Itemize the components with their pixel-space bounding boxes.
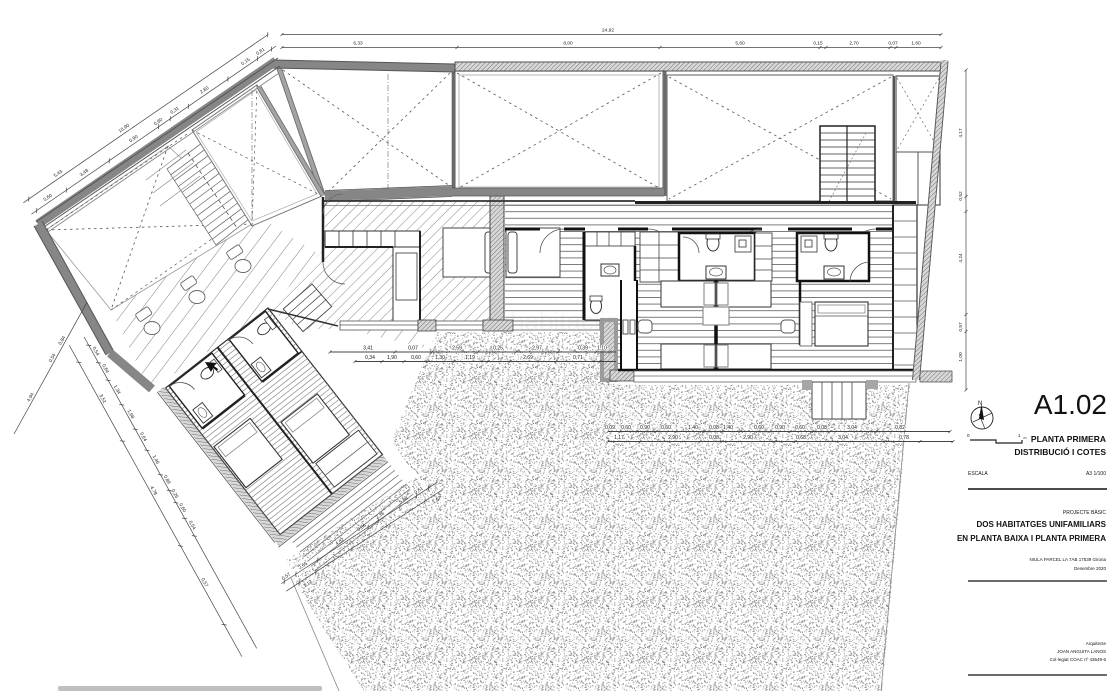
svg-text:3,41: 3,41 [363, 345, 373, 351]
svg-text:0,60: 0,60 [621, 425, 631, 431]
svg-text:0,68: 0,68 [796, 435, 806, 441]
svg-text:Desembre 2020: Desembre 2020 [1074, 566, 1107, 571]
svg-text:1,17: 1,17 [614, 435, 624, 441]
svg-text:0,39: 0,39 [578, 345, 588, 351]
svg-text:0,57: 0,57 [958, 322, 964, 332]
svg-text:0,08: 0,08 [709, 435, 719, 441]
svg-text:Col·legiat COAC nº 43649-6: Col·legiat COAC nº 43649-6 [1050, 657, 1107, 662]
svg-text:0,52: 0,52 [958, 191, 964, 201]
svg-text:4,24: 4,24 [958, 253, 964, 263]
svg-text:1,40: 1,40 [688, 425, 698, 431]
svg-text:0,08: 0,08 [817, 425, 827, 431]
svg-text:PLANTA PRIMERA: PLANTA PRIMERA [1031, 434, 1106, 444]
svg-text:2,70: 2,70 [849, 41, 859, 47]
svg-text:1,19: 1,19 [465, 355, 475, 361]
svg-text:0,09: 0,09 [605, 425, 615, 431]
svg-text:0,15: 0,15 [813, 41, 823, 47]
svg-text:0,60: 0,60 [754, 425, 764, 431]
svg-text:1,60: 1,60 [911, 41, 921, 47]
svg-text:0,90: 0,90 [640, 425, 650, 431]
svg-text:24,92: 24,92 [602, 28, 614, 34]
svg-text:0,71: 0,71 [573, 355, 583, 361]
svg-text:ESCALA: ESCALA [968, 471, 988, 477]
svg-text:3,04: 3,04 [847, 425, 857, 431]
svg-text:1,10: 1,10 [597, 345, 607, 351]
svg-text:0,60: 0,60 [795, 425, 805, 431]
svg-text:PROJECTE BÀSIC: PROJECTE BÀSIC [1063, 509, 1106, 516]
svg-text:EN PLANTA BAIXA I PLANTA PRIME: EN PLANTA BAIXA I PLANTA PRIMERA [957, 534, 1106, 543]
svg-text:A3 1/100: A3 1/100 [1086, 471, 1106, 477]
svg-text:0,08: 0,08 [709, 425, 719, 431]
svg-text:2,59: 2,59 [452, 345, 462, 351]
svg-text:1,30: 1,30 [435, 355, 445, 361]
svg-text:0,07: 0,07 [888, 41, 898, 47]
svg-text:JOAN ANGUITA LANOS: JOAN ANGUITA LANOS [1057, 649, 1106, 654]
svg-text:DISTRIBUCIÓ I COTES: DISTRIBUCIÓ I COTES [1014, 446, 1106, 457]
svg-text:habitaclia: habitaclia [475, 370, 645, 414]
svg-text:6,33: 6,33 [353, 41, 363, 47]
svg-text:0,90: 0,90 [775, 425, 785, 431]
svg-text:0,78: 0,78 [899, 435, 909, 441]
svg-text:0,07: 0,07 [408, 345, 418, 351]
svg-text:3,04: 3,04 [838, 435, 848, 441]
svg-text:A1.02: A1.02 [1034, 389, 1107, 420]
svg-text:0,60: 0,60 [661, 425, 671, 431]
svg-text:NIULA PARCEL LA 7AB 17539 Gi: NIULA PARCEL LA 7AB 17539 Girona [1029, 557, 1106, 562]
svg-text:1,00: 1,00 [958, 352, 964, 362]
svg-text:0,82: 0,82 [895, 425, 905, 431]
svg-text:1,40: 1,40 [723, 425, 733, 431]
svg-text:5,60: 5,60 [735, 41, 745, 47]
svg-text:habitaclia: habitaclia [510, 306, 620, 336]
svg-text:m: m [1024, 436, 1027, 440]
svg-text:2,69: 2,69 [523, 355, 533, 361]
svg-text:4,17: 4,17 [958, 128, 964, 138]
svg-text:0,34: 0,34 [365, 355, 375, 361]
svg-text:1,90: 1,90 [387, 355, 397, 361]
svg-text:2,90: 2,90 [668, 435, 678, 441]
svg-text:2,90: 2,90 [743, 435, 753, 441]
svg-text:0,60: 0,60 [411, 355, 421, 361]
svg-text:DOS HABITATGES UNIFAMILIARS: DOS HABITATGES UNIFAMILIARS [977, 520, 1107, 529]
svg-text:2,97: 2,97 [532, 345, 542, 351]
svg-text:Arquitecte: Arquitecte [1086, 641, 1107, 646]
svg-text:8,00: 8,00 [563, 41, 573, 47]
svg-text:0,25: 0,25 [493, 345, 503, 351]
